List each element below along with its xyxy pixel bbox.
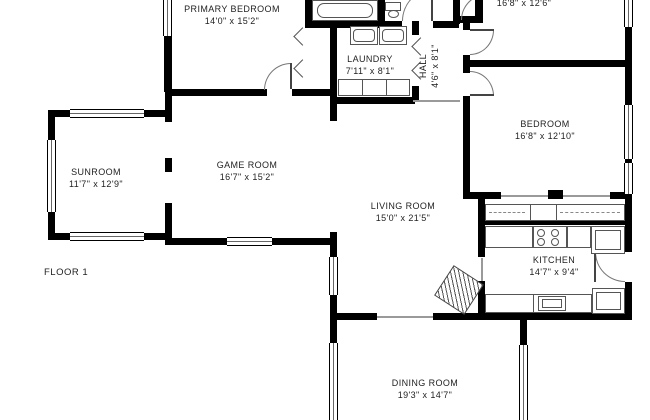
room-label-hall: HALL 4'6" x 8'1" (417, 44, 441, 88)
wood-stove-hatch (434, 265, 484, 315)
stove-burner-icon (551, 238, 559, 246)
room-name: HALL (417, 44, 429, 88)
room-name: GAME ROOM (217, 159, 278, 171)
opening (413, 100, 460, 102)
wall (520, 313, 527, 347)
wall (625, 192, 632, 252)
window (47, 140, 56, 212)
wall (48, 233, 72, 240)
door-leaf (290, 63, 292, 89)
floor-label: FLOOR 1 (44, 267, 88, 278)
dryer (382, 29, 404, 42)
wall (142, 233, 167, 240)
wall (330, 320, 337, 345)
bifold-door-icon (293, 59, 311, 77)
stove-burner-icon (537, 238, 545, 246)
window (329, 343, 338, 420)
wall (48, 110, 55, 142)
door-leaf (548, 190, 563, 199)
bathtub (317, 3, 373, 18)
door-leaf (594, 252, 596, 282)
room-dims: 16'8" x 12'6" (497, 0, 552, 9)
room-name: SUNROOM (69, 166, 123, 178)
room-dims: 16'8" x 12'10" (515, 130, 575, 142)
cabinet (386, 79, 387, 96)
window (624, 0, 633, 27)
wall (165, 238, 227, 245)
wall (165, 89, 172, 122)
window (227, 237, 272, 246)
room-name: DINING ROOM (392, 377, 458, 389)
wall (412, 21, 419, 35)
wall (142, 110, 167, 117)
door-swing-arc (595, 252, 625, 282)
room-name: LAUNDRY (346, 53, 395, 65)
wall (463, 96, 470, 192)
room-label-primary-bedroom: PRIMARY BEDROOM 14'0" x 15'2" (184, 3, 280, 27)
upper-cabinets (560, 212, 620, 213)
wall (330, 21, 337, 121)
room-label-dining-room: DINING ROOM 19'3" x 14'7" (392, 377, 458, 401)
bifold-door-icon (293, 27, 311, 45)
door-leaf (470, 94, 494, 96)
opening (501, 195, 548, 197)
room-label-game-room: GAME ROOM 16'7" x 15'2" (217, 159, 278, 183)
room-label-sunroom: SUNROOM 11'7" x 12'9" (69, 166, 123, 190)
opening (481, 258, 483, 281)
window (163, 0, 172, 36)
room-name: BEDROOM (515, 118, 575, 130)
wall (478, 192, 485, 257)
room-dims: 4'6" x 8'1" (429, 44, 441, 88)
room-name: PRIMARY BEDROOM (184, 3, 280, 15)
window (70, 232, 144, 241)
window (624, 105, 633, 159)
floor-plan: PRIMARY BEDROOM 14'0" x 15'2" 16'8" x 12… (0, 0, 650, 420)
room-dims: 16'7" x 15'2" (217, 171, 278, 183)
door-swing-arc (264, 63, 291, 90)
stove-burner-icon (551, 229, 559, 237)
washer (353, 29, 375, 42)
room-name: LIVING ROOM (371, 200, 435, 212)
window (70, 109, 144, 118)
window (624, 163, 633, 194)
room-dims: 11'7" x 12'9" (69, 178, 123, 190)
wall (625, 25, 632, 62)
room-label-bedroom: BEDROOM 16'8" x 12'10" (515, 118, 575, 142)
room-dims: 14'0" x 15'2" (184, 15, 280, 27)
wall (463, 60, 632, 67)
wall (625, 62, 632, 107)
room-name: KITCHEN (529, 254, 578, 266)
wall (330, 232, 337, 259)
door-leaf (470, 29, 494, 31)
sink (542, 299, 562, 308)
room-dims: 15'0" x 21'5" (371, 212, 435, 224)
window (519, 345, 528, 420)
counter (567, 226, 591, 248)
counter-edge (485, 221, 625, 225)
room-label-kitchen: KITCHEN 14'7" x 9'4" (529, 254, 578, 278)
wall (165, 158, 172, 172)
wall (463, 21, 470, 30)
door-swing-arc (470, 71, 494, 96)
wall (330, 97, 415, 104)
wall (165, 203, 172, 245)
door-swing-arc (470, 30, 494, 55)
window (329, 257, 338, 295)
pantry-cabinet (595, 230, 621, 250)
wall (378, 0, 385, 24)
wall (165, 89, 267, 96)
counter (485, 226, 533, 248)
upper-cabinets (489, 212, 525, 213)
counter (533, 294, 534, 313)
wall (330, 313, 377, 320)
room-label-top-right-room: 16'8" x 12'6" (497, 0, 552, 9)
room-label-living-room: LIVING ROOM 15'0" x 21'5" (371, 200, 435, 224)
opening (377, 316, 433, 318)
room-dims: 14'7" x 9'4" (529, 266, 578, 278)
opening (563, 195, 610, 197)
fridge (596, 292, 621, 310)
upper-cabinets (556, 204, 557, 221)
room-dims: 19'3" x 14'7" (392, 389, 458, 401)
cabinet (362, 79, 363, 96)
wall (272, 238, 337, 245)
toilet (388, 10, 399, 18)
door-swing-arc (402, 0, 433, 21)
upper-cabinets (530, 204, 531, 221)
door-leaf (431, 0, 433, 21)
door-swing-arc (461, 0, 487, 20)
stove-burner-icon (537, 229, 545, 237)
room-dims: 7'11" x 8'1" (346, 65, 395, 77)
room-label-laundry: LAUNDRY 7'11" x 8'1" (346, 53, 395, 77)
cabinet (338, 79, 410, 96)
wall (164, 34, 172, 92)
